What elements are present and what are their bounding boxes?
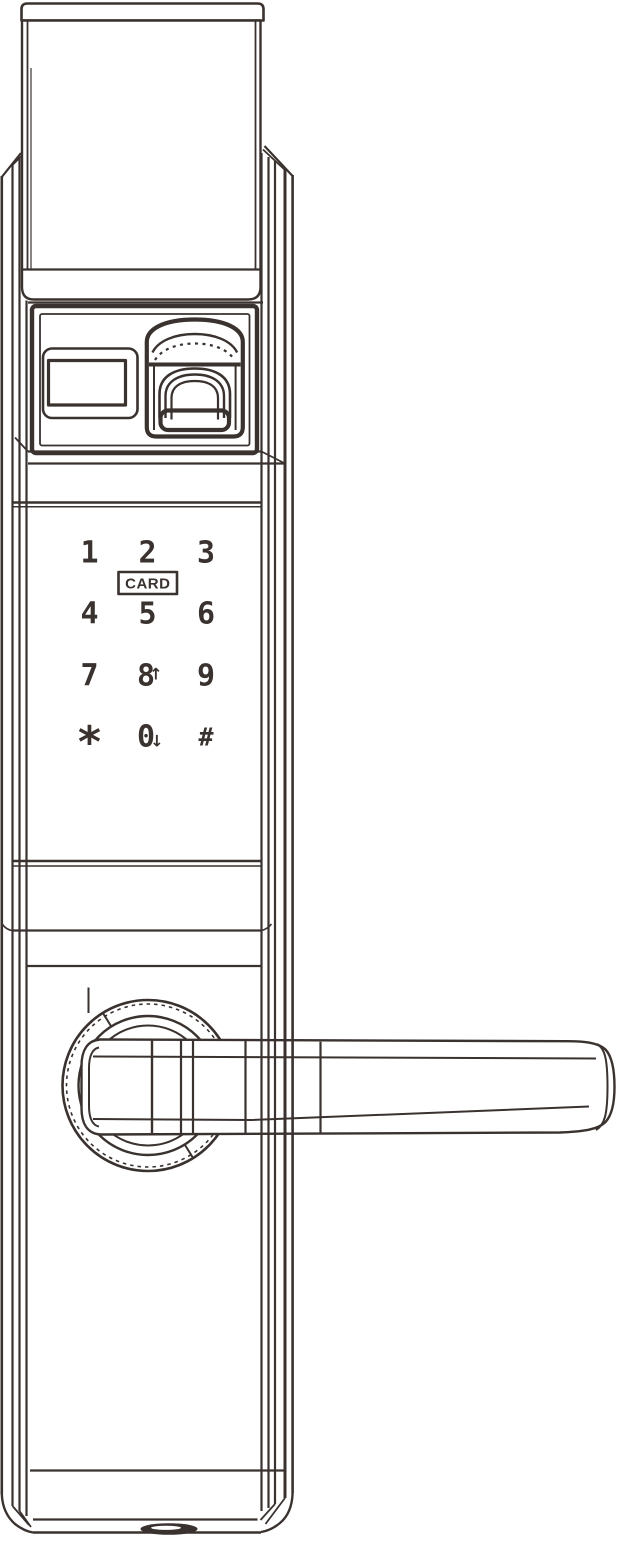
status-display-window [43, 349, 138, 419]
fingerprint-arch-inner [172, 381, 219, 420]
key-8-up-arrow-icon: ↑ [149, 665, 162, 684]
display-screen [49, 361, 126, 406]
key-2: 2 [138, 536, 156, 571]
key-3: 3 [197, 536, 215, 571]
key-5: 5 [138, 597, 156, 632]
card-key-label: CARD [125, 575, 170, 592]
keyhole-cover [141, 1523, 198, 1535]
lever-handle [82, 1040, 615, 1135]
key-9: 9 [197, 659, 215, 694]
key-1: 1 [80, 536, 98, 571]
body-bottom-right-corner [261, 1493, 293, 1532]
cover-face [22, 21, 261, 300]
key-hash: # [198, 723, 213, 752]
key-7: 7 [80, 659, 98, 694]
body-bottom-left-corner [2, 1494, 33, 1533]
top-cover [22, 4, 264, 300]
mid-body-seam-upper-right-tick [262, 924, 272, 931]
key-0-down-arrow-icon: ↓ [150, 732, 163, 751]
fingerprint-brow-dotted-arc [155, 344, 235, 361]
key-6: 6 [197, 597, 215, 632]
panel-band-right-diag [262, 452, 286, 464]
door-lock-illustration: 1 2 3 CARD 4 5 6 7 8 ↑ 9 * 0 ↓ # [0, 0, 617, 1541]
cover-cap [22, 4, 264, 21]
touch-keypad: 1 2 3 CARD 4 5 6 7 8 ↑ 9 * 0 ↓ # [76, 536, 215, 769]
keyhole-cover-slit [151, 1526, 181, 1530]
fingerprint-scanner [147, 320, 243, 437]
key-star: * [76, 717, 103, 768]
mid-body-seam-upper-left-tick [2, 924, 11, 931]
sensor-panel [32, 306, 257, 453]
key-4: 4 [80, 597, 98, 632]
body-bottom-left-diag-3 [20, 1511, 32, 1527]
